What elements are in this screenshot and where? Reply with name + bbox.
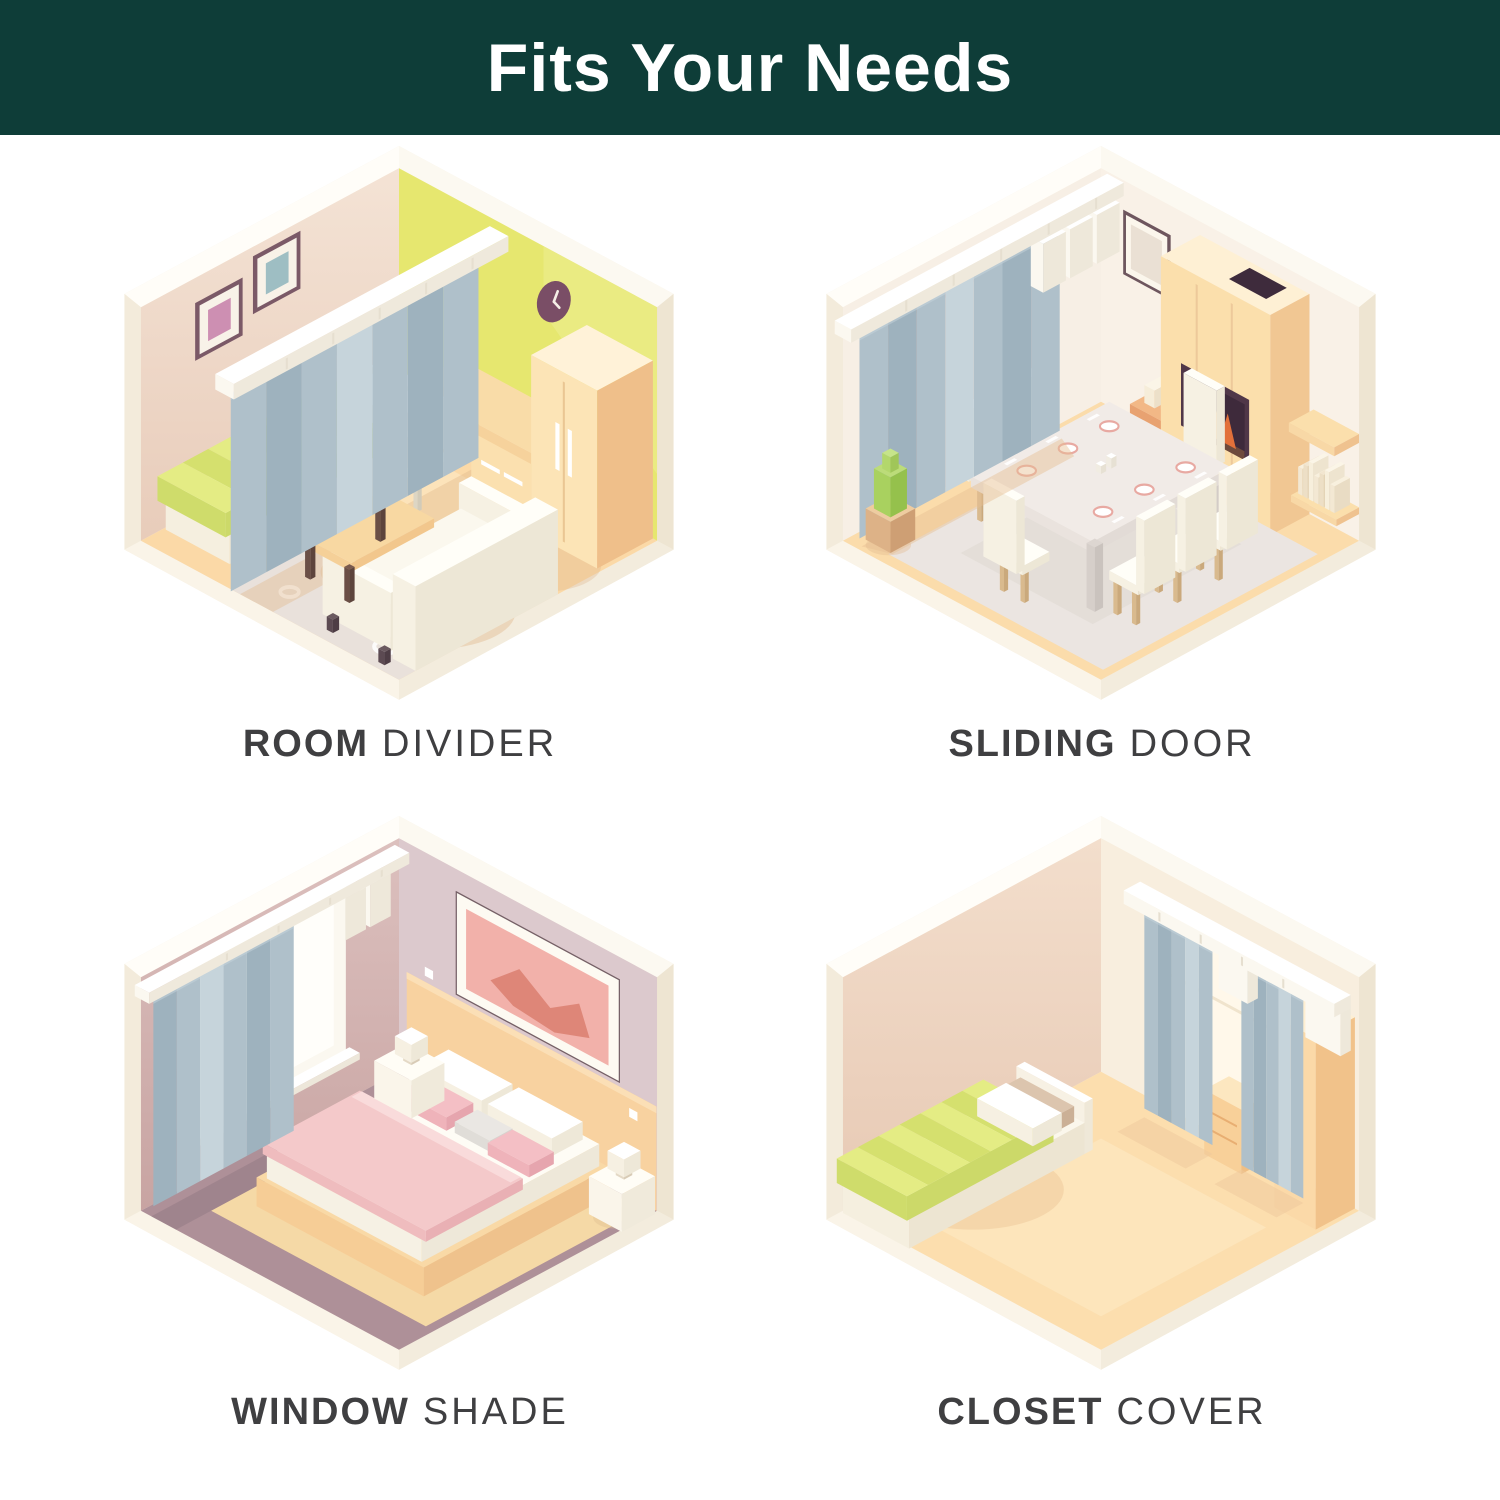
label-window-shade: WINDOWSHADE <box>110 1390 690 1434</box>
window-shade-illustration <box>110 816 688 1372</box>
page-title: Fits Your Needs <box>487 29 1013 107</box>
label-closet-cover: CLOSETCOVER <box>812 1390 1392 1434</box>
header-banner: Fits Your Needs <box>0 0 1500 135</box>
label-room-divider: ROOMDIVIDER <box>110 722 690 766</box>
label-sliding-door: SLIDINGDOOR <box>812 722 1392 766</box>
label-light-word: COVER <box>1116 1391 1266 1433</box>
label-light-word: DIVIDER <box>382 723 557 765</box>
sliding-door-illustration <box>812 146 1390 702</box>
label-bold-word: ROOM <box>243 723 369 765</box>
label-bold-word: WINDOW <box>231 1391 410 1433</box>
label-light-word: DOOR <box>1130 723 1256 765</box>
label-light-word: SHADE <box>423 1391 569 1433</box>
label-bold-word: SLIDING <box>948 723 1116 765</box>
label-bold-word: CLOSET <box>937 1391 1103 1433</box>
room-divider-illustration <box>110 146 688 702</box>
closet-cover-illustration <box>812 816 1390 1372</box>
